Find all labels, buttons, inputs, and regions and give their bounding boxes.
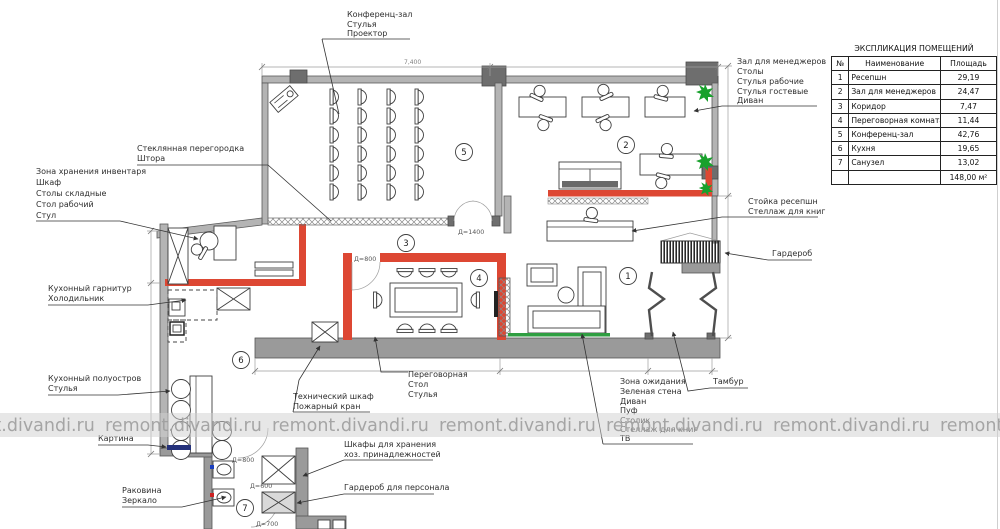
red-partition-managers <box>548 190 712 197</box>
room-number-7: 7 <box>237 500 254 517</box>
green-wall-strip <box>508 333 610 337</box>
svg-text:Раковина: Раковина <box>122 486 162 495</box>
plant-icon <box>696 84 714 102</box>
svg-text:Стеллаж для книг: Стеллаж для книг <box>748 207 826 216</box>
table-total-row: 148,00 м² <box>832 170 997 184</box>
svg-text:Зеленая стена: Зеленая стена <box>620 387 682 396</box>
svg-text:Стулья: Стулья <box>347 20 377 29</box>
rooms-divider-wall <box>495 83 502 216</box>
svg-text:Конференц-зал: Конференц-зал <box>347 10 412 19</box>
table-row: 2 Зал для менеджеров 24,47 <box>832 85 997 99</box>
table-row: 6 Кухня 19,65 <box>832 142 997 156</box>
svg-text:7: 7 <box>242 504 247 514</box>
svg-text:Гардероб: Гардероб <box>772 249 812 258</box>
svg-text:Тамбур: Тамбур <box>712 377 744 386</box>
floor-plan-sheet: 7,400 Д=1400 Д=800 Д=800 Д=600 Д=700 1 2… <box>0 0 1000 529</box>
entrance-zone <box>649 233 720 336</box>
svg-text:Зеркало: Зеркало <box>122 496 157 505</box>
table-row: 4 Переговорная комната 11,44 <box>832 113 997 127</box>
watermark-text: remont.divandi.ru <box>272 416 429 436</box>
svg-text:Холодильник: Холодильник <box>48 294 104 303</box>
office-chair-icon <box>659 143 674 159</box>
svg-text:Кухонный полуостров: Кухонный полуостров <box>48 374 141 383</box>
callout-storage-cabinets: Шкафы для хранения хоз. принадлежностей <box>303 440 441 476</box>
svg-text:2: 2 <box>623 141 628 151</box>
meeting-door-arc <box>352 262 380 290</box>
svg-text:Стол: Стол <box>408 380 428 389</box>
bar-chair <box>213 441 232 460</box>
room-number-1: 1 <box>620 268 637 285</box>
svg-text:Столы складные: Столы складные <box>36 189 106 198</box>
room-number-5: 5 <box>456 144 473 161</box>
door-dim: Д=800 <box>232 457 254 464</box>
column <box>290 70 307 83</box>
faucet <box>210 493 214 497</box>
callout-reception-desk: Стойка ресепшн Стеллаж для книг <box>632 197 826 231</box>
watermark-text: remont.divandi.ru <box>439 416 596 436</box>
svg-text:Шкаф: Шкаф <box>36 178 61 187</box>
pouf <box>558 287 574 303</box>
svg-text:Переговорная: Переговорная <box>408 370 468 379</box>
explication-title: ЭКСПЛИКАЦИЯ ПОМЕЩЕНИЙ <box>831 44 997 53</box>
svg-text:Стойка ресепшн: Стойка ресепшн <box>748 197 818 206</box>
wardrobe-rack <box>661 241 720 263</box>
reception-desk <box>547 221 633 241</box>
room-number-2: 2 <box>618 137 635 154</box>
svg-text:Пожарный кран: Пожарный кран <box>293 402 360 411</box>
svg-text:Зал для менеджеров: Зал для менеджеров <box>737 57 826 66</box>
door-dim: Д=700 <box>256 521 278 528</box>
svg-text:Зона хранения инвентаря: Зона хранения инвентаря <box>36 167 146 176</box>
total-area: 148,00 м² <box>940 170 996 184</box>
door-dim: Д=1400 <box>458 229 484 236</box>
tv <box>494 291 498 317</box>
svg-text:Технический шкаф: Технический шкаф <box>292 392 374 401</box>
reception <box>494 206 633 336</box>
coffee-table <box>527 264 557 286</box>
room-number-6: 6 <box>233 352 250 369</box>
room-number-3: 3 <box>398 235 415 252</box>
table-row: 1 Ресепшн 29,19 <box>832 71 997 85</box>
folding-table <box>255 262 293 268</box>
svg-text:Шкафы для хранения: Шкафы для хранения <box>344 440 436 449</box>
red-wall-meeting-left <box>343 253 352 340</box>
conference-glass-partition <box>268 218 452 225</box>
callout-wardrobe: Гардероб <box>725 249 812 260</box>
conference-room <box>270 86 424 200</box>
table-row: 7 Санузел 13,02 <box>832 156 997 170</box>
callout-kitchen-peninsula: Кухонный полуостров Стулья <box>48 374 170 395</box>
bathroom-right-wall <box>296 448 308 521</box>
svg-text:3: 3 <box>403 239 408 249</box>
door-dim: Д=800 <box>354 256 376 263</box>
wardrobe-bench <box>682 263 720 273</box>
sofa-l-horizontal <box>528 306 605 333</box>
svg-text:Стулья гостевые: Стулья гостевые <box>737 87 808 96</box>
watermark-text: remont.divandi.ru <box>606 416 763 436</box>
double-door-arc <box>454 201 492 221</box>
callout-glass-partition: Стеклянная перегородка Штора <box>137 144 331 221</box>
svg-text:Стол рабочий: Стол рабочий <box>36 200 94 209</box>
table-header-row: № Наименование Площадь <box>832 57 997 71</box>
svg-text:Диван: Диван <box>737 96 763 105</box>
svg-text:Зона ожидания: Зона ожидания <box>620 377 686 386</box>
conference-chairs <box>330 89 424 200</box>
folding-table <box>255 270 293 276</box>
red-wall-kitchen-v <box>299 224 306 282</box>
callout-conference: Конференц-зал Стулья Проектор <box>322 10 412 114</box>
col-name-header: Наименование <box>849 57 941 71</box>
bookshelf <box>499 278 510 336</box>
conference-left-wall <box>262 83 268 224</box>
col-num-header: № <box>832 57 849 71</box>
managers-glass <box>548 198 648 204</box>
svg-text:Гардероб для персонала: Гардероб для персонала <box>344 483 450 492</box>
svg-text:Диван: Диван <box>620 397 646 406</box>
svg-text:4: 4 <box>476 274 481 284</box>
tambour-wall-left <box>649 272 664 336</box>
table-row: 5 Конференц-зал 42,76 <box>832 127 997 141</box>
watermark-band: remont.divandi.ru remont.divandi.ru remo… <box>0 413 1000 437</box>
door-post <box>492 216 500 226</box>
svg-text:Штора: Штора <box>137 154 165 163</box>
column <box>686 62 718 85</box>
watermark-text: remont.divandi.ru <box>773 416 930 436</box>
tambour-wall-right <box>701 272 716 336</box>
svg-text:1: 1 <box>625 272 630 282</box>
room-number-4: 4 <box>471 270 488 287</box>
managers-hall <box>519 82 714 196</box>
svg-text:6: 6 <box>238 356 243 366</box>
door-post <box>448 216 454 226</box>
reception-left-wall <box>504 196 511 233</box>
round-table <box>200 232 218 250</box>
projector-icon <box>270 86 298 113</box>
svg-text:Столы: Столы <box>737 67 764 76</box>
small-unit <box>333 520 345 529</box>
dim-text: 7,400 <box>404 59 421 66</box>
picture <box>167 445 191 450</box>
svg-text:5: 5 <box>461 148 466 158</box>
faucet <box>210 465 214 469</box>
wardrobe-top-line <box>661 233 720 241</box>
col-area-header: Площадь <box>940 57 996 71</box>
svg-text:Стеклянная перегородка: Стеклянная перегородка <box>137 144 244 153</box>
inventory-storage <box>168 226 293 284</box>
bar-chair <box>172 380 191 399</box>
sofa-seat <box>562 181 618 188</box>
svg-text:Стулья: Стулья <box>408 390 438 399</box>
watermark-text: remont.divandi.ru <box>940 416 1000 436</box>
watermark-text: remont.divandi.ru <box>105 416 262 436</box>
door-dim: Д=600 <box>250 483 272 490</box>
callout-staff-wardrobe: Гардероб для персонала <box>297 483 450 503</box>
svg-text:Кухонный гарнитур: Кухонный гарнитур <box>48 284 132 293</box>
office-chair-icon <box>584 206 600 222</box>
desk <box>582 97 629 117</box>
watermark-text: remont.divandi.ru <box>0 416 95 436</box>
sink-unit <box>170 322 184 335</box>
explication-table: ЭКСПЛИКАЦИЯ ПОМЕЩЕНИЙ № Наименование Пло… <box>831 44 997 185</box>
right-wall-lower <box>712 196 717 243</box>
svg-text:хоз. принадлежностей: хоз. принадлежностей <box>344 450 441 459</box>
small-unit <box>318 520 330 529</box>
svg-text:Стул: Стул <box>36 211 56 220</box>
svg-text:Стулья рабочие: Стулья рабочие <box>737 77 804 86</box>
svg-text:Проектор: Проектор <box>347 29 387 38</box>
meeting-room <box>374 269 480 333</box>
red-wall-meeting-top <box>380 253 504 262</box>
svg-text:Стулья: Стулья <box>48 384 78 393</box>
table-row: 3 Коридор 7,47 <box>832 99 997 113</box>
